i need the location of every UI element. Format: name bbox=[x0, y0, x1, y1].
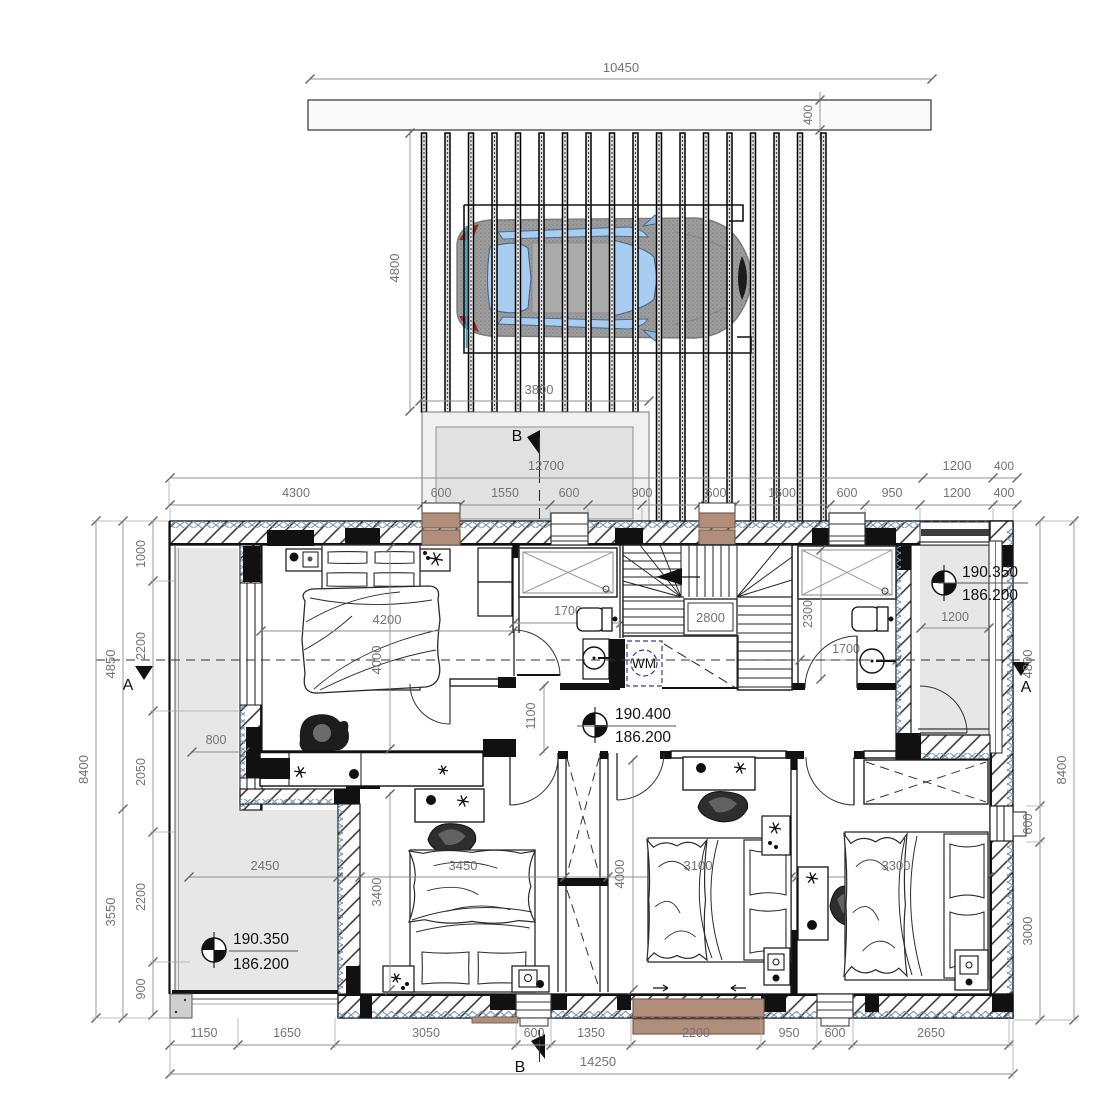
svg-text:600: 600 bbox=[825, 1026, 846, 1040]
svg-text:B: B bbox=[515, 1059, 526, 1076]
svg-text:3000: 3000 bbox=[1020, 917, 1035, 946]
svg-text:900: 900 bbox=[632, 486, 653, 500]
svg-text:2450: 2450 bbox=[251, 858, 280, 873]
svg-text:186.200: 186.200 bbox=[615, 729, 671, 746]
svg-text:3450: 3450 bbox=[449, 858, 478, 873]
svg-text:2800: 2800 bbox=[696, 610, 725, 625]
svg-text:3100: 3100 bbox=[684, 858, 713, 873]
svg-text:3300: 3300 bbox=[882, 858, 911, 873]
svg-text:3050: 3050 bbox=[412, 1026, 440, 1040]
svg-text:400: 400 bbox=[994, 459, 1014, 473]
svg-text:4800: 4800 bbox=[1020, 650, 1035, 679]
svg-text:2200: 2200 bbox=[682, 1026, 710, 1040]
svg-text:8400: 8400 bbox=[76, 755, 91, 784]
svg-text:900: 900 bbox=[134, 979, 148, 1000]
svg-text:1650: 1650 bbox=[273, 1026, 301, 1040]
svg-text:400: 400 bbox=[994, 486, 1015, 500]
svg-text:4800: 4800 bbox=[387, 254, 402, 283]
svg-text:A: A bbox=[123, 677, 134, 694]
svg-text:1600: 1600 bbox=[768, 486, 796, 500]
svg-text:1700: 1700 bbox=[832, 642, 860, 656]
svg-text:950: 950 bbox=[779, 1026, 800, 1040]
svg-text:WM: WM bbox=[632, 656, 656, 671]
svg-text:600: 600 bbox=[1021, 814, 1035, 835]
svg-text:800: 800 bbox=[206, 733, 227, 747]
svg-text:12700: 12700 bbox=[528, 458, 564, 473]
svg-text:2050: 2050 bbox=[134, 758, 148, 786]
svg-text:1000: 1000 bbox=[134, 540, 148, 568]
svg-text:3550: 3550 bbox=[103, 898, 118, 927]
svg-text:A: A bbox=[1021, 679, 1032, 696]
svg-text:186.200: 186.200 bbox=[233, 956, 289, 973]
svg-text:950: 950 bbox=[882, 486, 903, 500]
svg-text:2200: 2200 bbox=[134, 883, 148, 911]
svg-text:190.400: 190.400 bbox=[615, 706, 671, 723]
svg-text:600: 600 bbox=[431, 486, 452, 500]
svg-text:B: B bbox=[512, 428, 523, 445]
svg-text:600: 600 bbox=[524, 1026, 545, 1040]
svg-text:400: 400 bbox=[801, 105, 815, 125]
svg-text:1550: 1550 bbox=[491, 486, 519, 500]
svg-text:600: 600 bbox=[837, 486, 858, 500]
svg-text:1200: 1200 bbox=[943, 458, 972, 473]
svg-text:190.350: 190.350 bbox=[233, 931, 289, 948]
svg-text:4300: 4300 bbox=[282, 486, 310, 500]
svg-text:1200: 1200 bbox=[941, 610, 969, 624]
svg-text:10450: 10450 bbox=[603, 60, 639, 75]
svg-text:3800: 3800 bbox=[525, 382, 554, 397]
svg-text:1350: 1350 bbox=[577, 1026, 605, 1040]
svg-text:600: 600 bbox=[706, 486, 727, 500]
svg-text:186.200: 186.200 bbox=[962, 587, 1018, 604]
svg-text:4200: 4200 bbox=[373, 612, 402, 627]
svg-text:2200: 2200 bbox=[134, 632, 148, 660]
svg-text:4000: 4000 bbox=[612, 860, 627, 889]
svg-text:1150: 1150 bbox=[191, 1026, 218, 1040]
svg-text:2650: 2650 bbox=[917, 1026, 945, 1040]
svg-text:14250: 14250 bbox=[580, 1054, 616, 1069]
svg-text:3400: 3400 bbox=[369, 878, 384, 907]
svg-text:1200: 1200 bbox=[943, 486, 971, 500]
svg-text:2300: 2300 bbox=[801, 600, 815, 628]
svg-text:4850: 4850 bbox=[103, 650, 118, 679]
svg-text:8400: 8400 bbox=[1054, 756, 1069, 785]
svg-text:600: 600 bbox=[559, 486, 580, 500]
svg-text:190.350: 190.350 bbox=[962, 564, 1018, 581]
svg-text:1100: 1100 bbox=[524, 703, 538, 730]
